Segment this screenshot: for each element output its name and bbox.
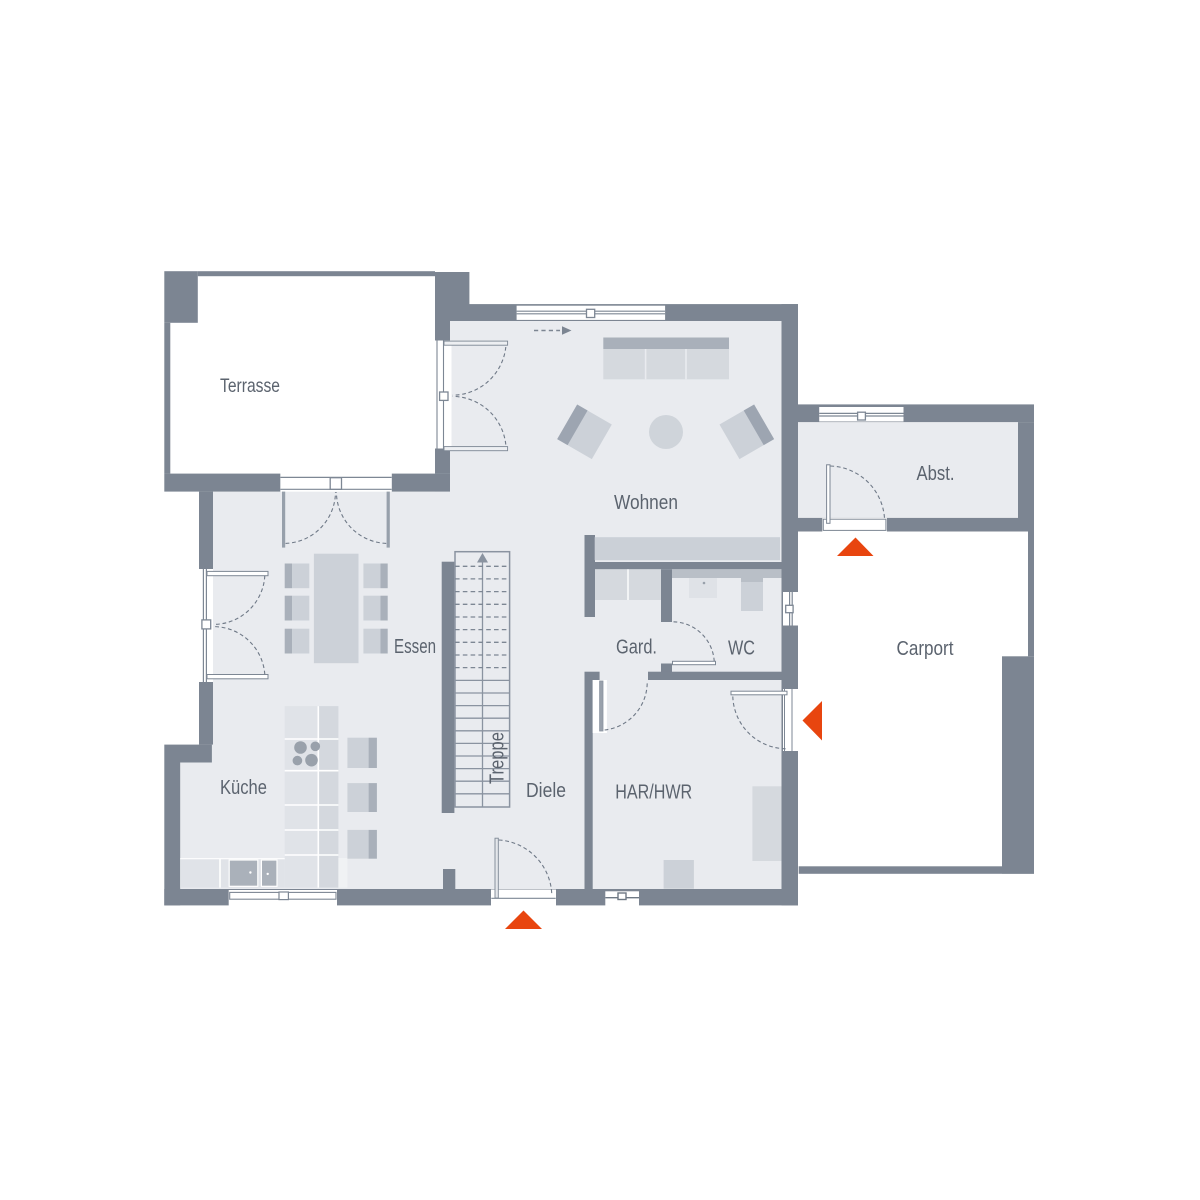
svg-text:Carport: Carport xyxy=(897,638,954,660)
svg-text:Abst.: Abst. xyxy=(917,463,955,485)
svg-text:Küche: Küche xyxy=(220,777,267,799)
svg-text:Terrasse: Terrasse xyxy=(220,375,280,397)
svg-text:Treppe: Treppe xyxy=(487,732,509,784)
svg-text:Diele: Diele xyxy=(526,780,566,802)
svg-text:Wohnen: Wohnen xyxy=(614,492,678,514)
svg-text:Essen: Essen xyxy=(394,636,436,658)
svg-text:Gard.: Gard. xyxy=(616,637,657,659)
svg-text:HAR/HWR: HAR/HWR xyxy=(615,782,692,804)
svg-text:WC: WC xyxy=(728,638,755,660)
